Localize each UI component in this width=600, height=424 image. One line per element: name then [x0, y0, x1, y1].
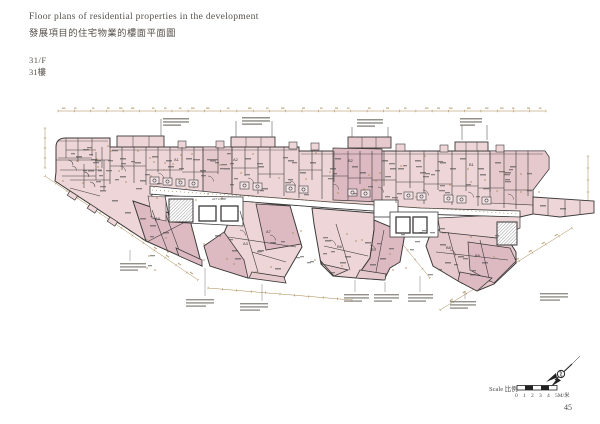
svg-text:B2: B2 [348, 158, 354, 163]
svg-text:B6: B6 [337, 244, 343, 249]
svg-text:2: 2 [531, 393, 534, 399]
svg-text:0: 0 [515, 393, 518, 399]
svg-text:4: 4 [547, 393, 550, 399]
svg-text:A2: A2 [233, 157, 239, 162]
svg-text:A1: A1 [174, 157, 180, 162]
svg-text:A7: A7 [266, 229, 272, 234]
svg-text:Scale 比例: Scale 比例 [489, 384, 518, 393]
svg-text:B1: B1 [469, 162, 475, 167]
svg-text:A3: A3 [243, 241, 249, 246]
svg-text:B7: B7 [371, 247, 377, 252]
svg-text:B8: B8 [446, 245, 452, 250]
svg-text:1: 1 [523, 393, 526, 399]
svg-text:3: 3 [539, 393, 542, 399]
svg-text:5M/米: 5M/米 [555, 391, 570, 399]
svg-text:B9: B9 [475, 253, 481, 258]
svg-text:LIFT LOBBY: LIFT LOBBY [212, 197, 227, 201]
svg-text:A8: A8 [155, 216, 161, 221]
